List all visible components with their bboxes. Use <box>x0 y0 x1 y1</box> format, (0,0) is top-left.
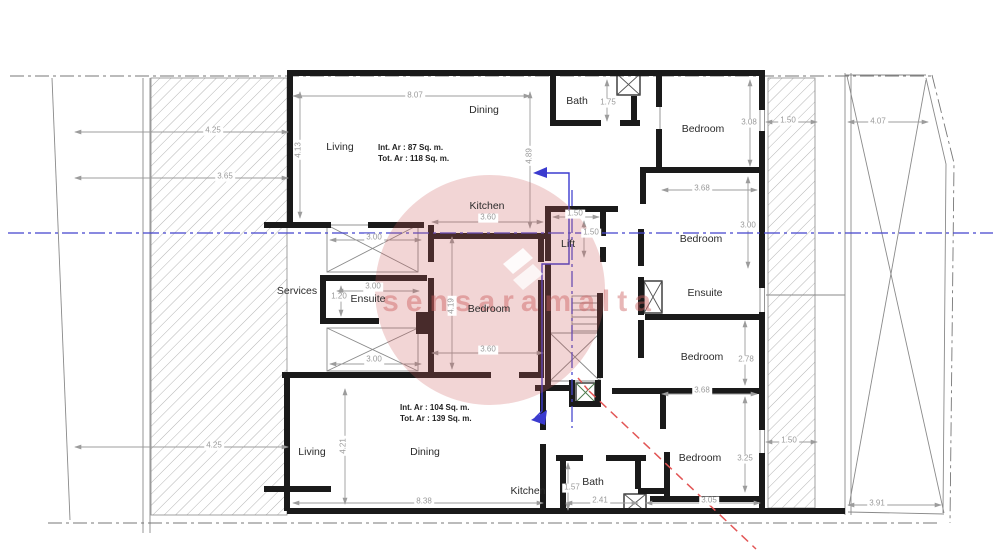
room-label-living-bottom: Living <box>298 446 325 458</box>
dimension-label: 4.19 <box>448 296 457 316</box>
dimension-label: 8.38 <box>414 498 434 507</box>
dimension-label: 3.00 <box>738 222 758 231</box>
dimension-label: 4.89 <box>526 146 535 166</box>
dimension-label: 2.41 <box>590 497 610 506</box>
floor-plan-canvas: sensaramalta Dining Bath Bedroom Living … <box>0 0 1000 550</box>
room-label-bedroom-bottom-right: Bedroom <box>679 452 722 464</box>
room-label-kitchen-top: Kitchen <box>469 200 504 212</box>
area-note-lower: Int. Ar : 104 Sq. m. Tot. Ar : 139 Sq. m… <box>400 402 472 424</box>
room-label-bath-bottom: Bath <box>582 476 604 488</box>
room-label-ensuite-right: Ensuite <box>687 287 722 299</box>
dimension-label: 1.50 <box>565 210 585 219</box>
dimension-label: 1.57 <box>562 484 582 493</box>
dimension-label: 1.75 <box>598 99 618 108</box>
dimension-label: 2.78 <box>736 356 756 365</box>
area-note-upper-line2: Tot. Ar : 118 Sq. m. <box>378 153 449 164</box>
dimension-label: 3.60 <box>478 346 498 355</box>
area-note-upper-line1: Int. Ar : 87 Sq. m. <box>378 142 449 153</box>
room-label-living-top: Living <box>326 141 353 153</box>
dimension-label: 1.50 <box>581 229 601 238</box>
dimension-label: 3.65 <box>215 173 235 182</box>
dimension-label: 3.68 <box>692 387 712 396</box>
room-label-bath-top: Bath <box>566 95 588 107</box>
dimension-label: 3.00 <box>364 234 384 243</box>
area-note-upper: Int. Ar : 87 Sq. m. Tot. Ar : 118 Sq. m. <box>378 142 449 164</box>
dimension-label: 4.21 <box>340 436 349 456</box>
dimension-label: 1.50 <box>778 117 798 126</box>
dimension-label: 3.00 <box>363 283 383 292</box>
area-note-lower-line2: Tot. Ar : 139 Sq. m. <box>400 413 472 424</box>
dimension-label: 1.20 <box>329 293 349 302</box>
area-note-lower-line1: Int. Ar : 104 Sq. m. <box>400 402 472 413</box>
dimension-label: 8.07 <box>405 92 425 101</box>
dimension-label: 3.68 <box>692 185 712 194</box>
room-label-services: Services <box>277 285 317 297</box>
dimension-label: 3.91 <box>867 500 887 509</box>
dimension-label: 4.25 <box>204 442 224 451</box>
room-label-bedroom-center: Bedroom <box>468 303 511 315</box>
dimension-label: 3.00 <box>364 356 384 365</box>
room-label-dining-bottom: Dining <box>410 446 440 458</box>
dimension-label: 3.05 <box>699 497 719 506</box>
room-label-lift: Lift <box>561 238 575 250</box>
dimension-label: 4.13 <box>295 140 304 160</box>
dimension-label: 4.07 <box>868 118 888 127</box>
room-label-ensuite-left: Ensuite <box>350 293 385 305</box>
room-label-bedroom-top-right: Bedroom <box>682 123 725 135</box>
room-label-dining-top: Dining <box>469 104 499 116</box>
room-label-bedroom-lower-right: Bedroom <box>681 351 724 363</box>
watermark-text: sensaramalta <box>382 285 658 319</box>
room-label-kitchen-bottom: Kitchen <box>510 485 545 497</box>
dimension-label: 3.60 <box>478 214 498 223</box>
dimension-label: 3.25 <box>735 455 755 464</box>
dimension-label: 1.50 <box>779 437 799 446</box>
dimension-label: 3.08 <box>739 119 759 128</box>
dimension-label: 4.25 <box>203 127 223 136</box>
room-label-bedroom-mid-right: Bedroom <box>680 233 723 245</box>
windows <box>660 107 765 453</box>
